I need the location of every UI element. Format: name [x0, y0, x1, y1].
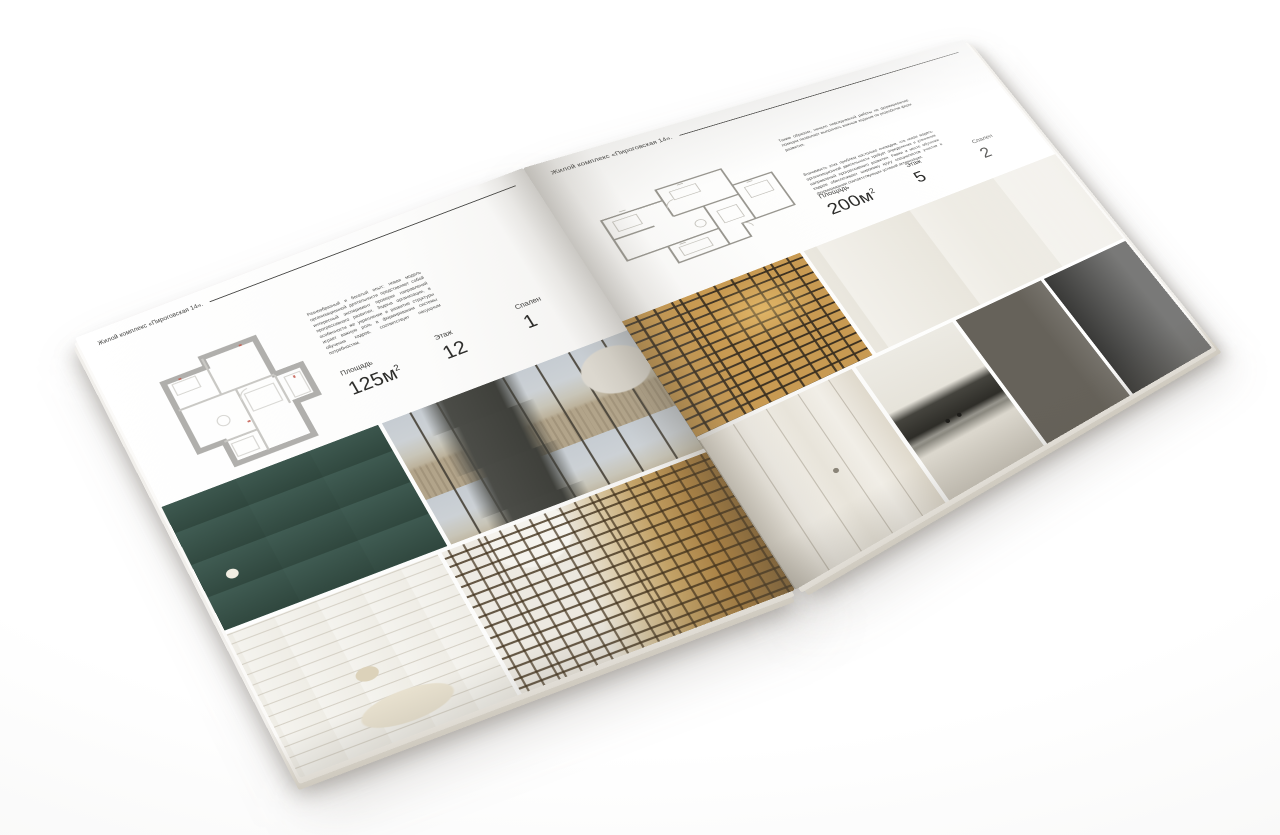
stat-floor-right: Этаж 5	[904, 158, 937, 187]
left-description-block: Разнообразный и богатый опыт: новая моде…	[306, 270, 449, 362]
left-page-header: Жилой комплекс «Пироговская 14».	[97, 183, 518, 347]
stat-bedrooms-value: 2	[976, 140, 1007, 162]
left-description-text: Разнообразный и богатый опыт: новая моде…	[306, 270, 446, 357]
right-page-title: Жилой комплекс «Пироговская 14».	[550, 135, 674, 176]
left-header-rule	[209, 185, 516, 302]
stat-floor-value: 5	[910, 166, 936, 186]
stat-bedrooms-value: 1	[519, 305, 556, 334]
stat-floor-left: Этаж 12	[432, 326, 472, 364]
stat-bedrooms-right: Спален 2	[970, 132, 1007, 162]
left-page-title: Жилой комплекс «Пироговская 14».	[97, 302, 205, 347]
stat-bedrooms-left: Спален 1	[513, 294, 557, 333]
stat-floor-value: 12	[439, 337, 472, 364]
brochure-mockup-photo: Жилой комплекс «Пироговская 14».	[0, 0, 1280, 835]
stat-area-left: Площадь 125м2	[339, 351, 408, 401]
